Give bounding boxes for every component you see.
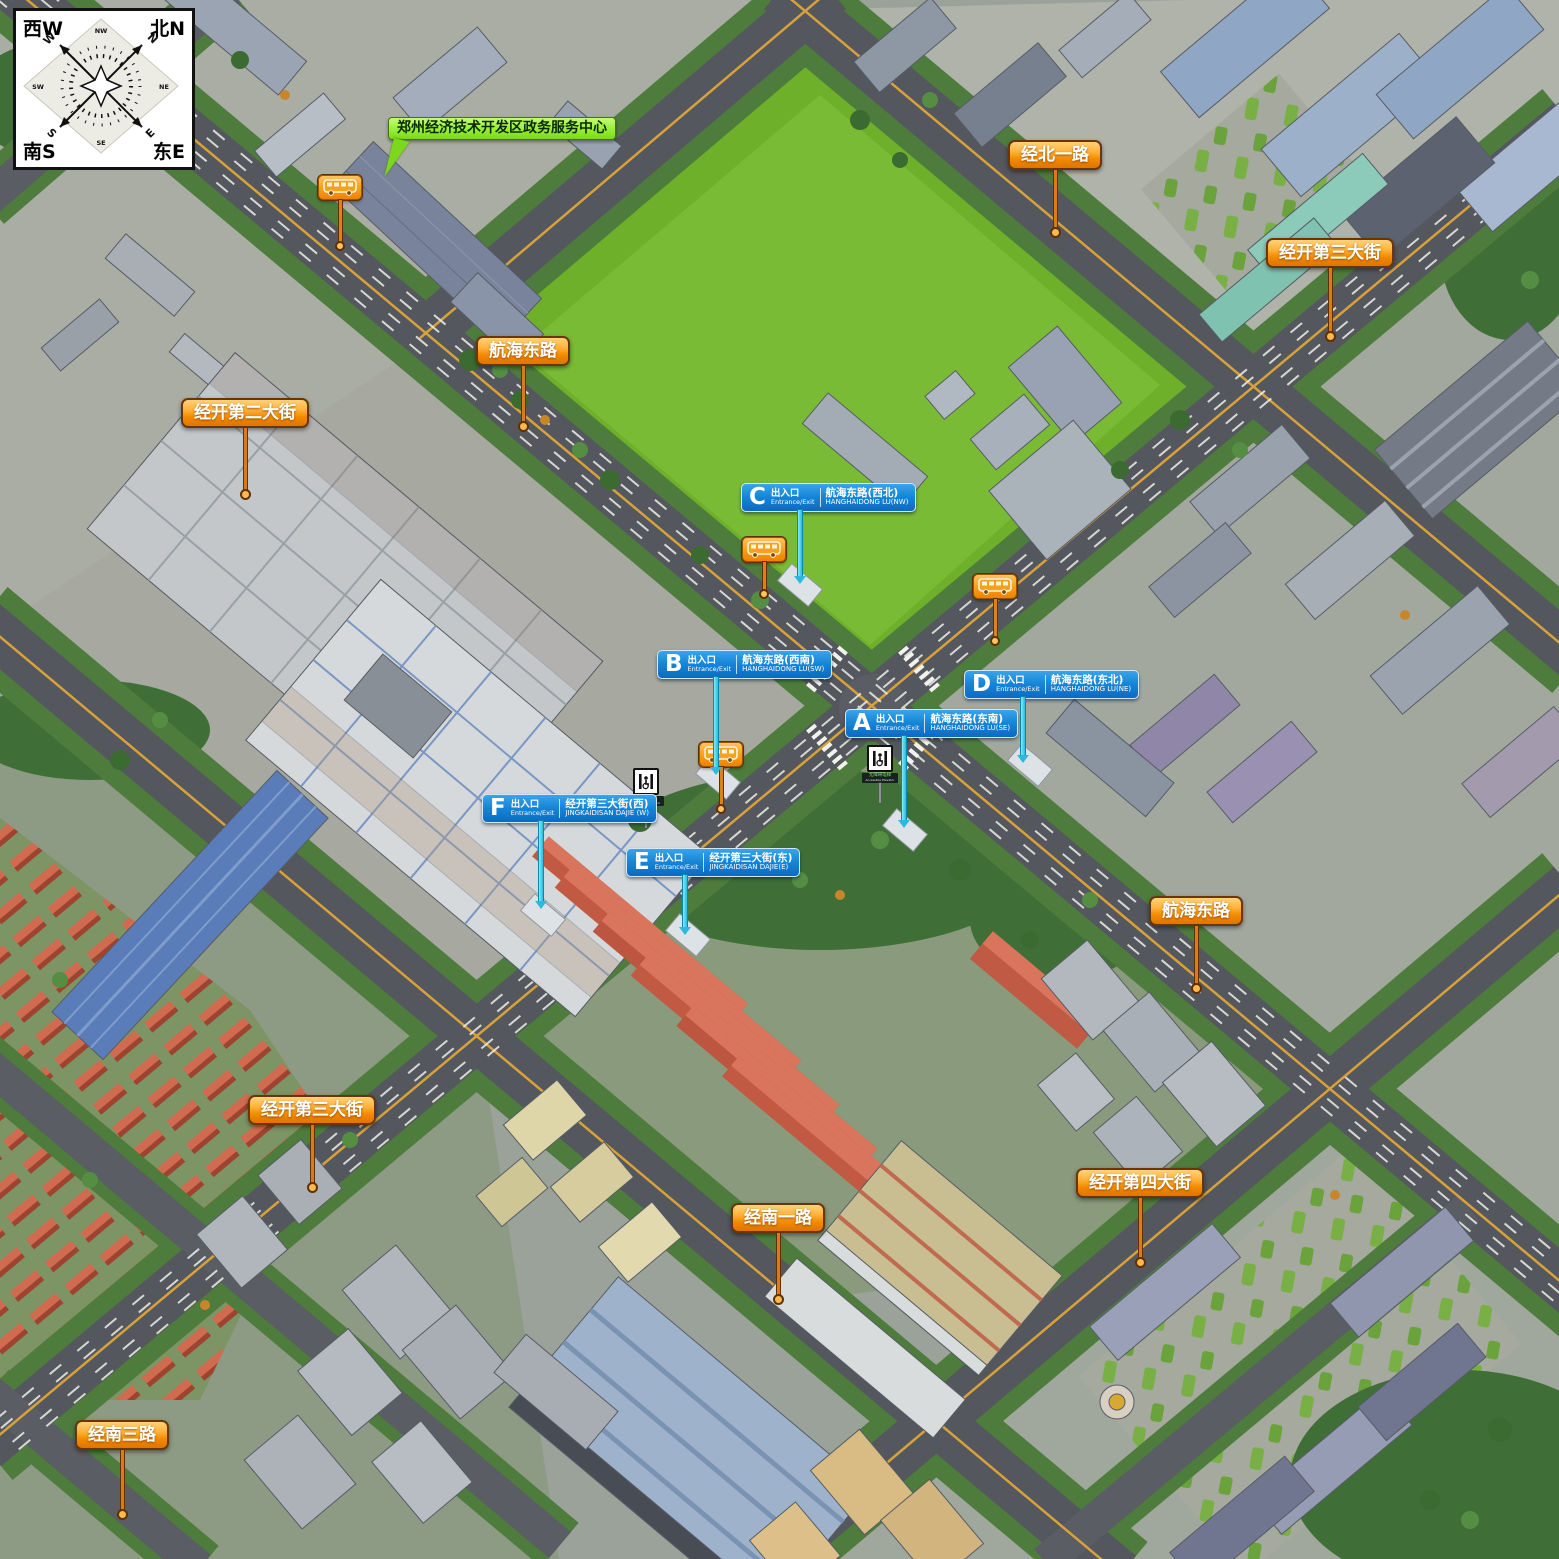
divider — [1045, 675, 1046, 694]
entrance-type-en: Entrance/Exit — [688, 666, 732, 673]
svg-text:NE: NE — [159, 83, 169, 91]
entrance-stick-tip — [535, 901, 547, 909]
entrance-road-en: HANGHAIDONG LU(SE) — [930, 725, 1010, 732]
metro-entrance-b[interactable]: B 出入口Entrance/Exit 航海东路(西南)HANGHAIDONG L… — [657, 650, 832, 679]
compass-south-label: 南S — [23, 137, 56, 164]
road-label-jingkai-3-dajie-north[interactable]: 经开第三大街 — [1266, 238, 1394, 342]
bus-stop-marker[interactable] — [742, 537, 786, 599]
entrance-type-en: Entrance/Exit — [876, 725, 920, 732]
bus-stop-marker[interactable] — [318, 175, 362, 251]
svg-text:SW: SW — [32, 83, 44, 91]
compass-west-label: 西W — [23, 14, 63, 41]
entrance-letter: D — [972, 671, 991, 698]
entrance-type-en: Entrance/Exit — [771, 499, 815, 506]
map-scene — [0, 0, 1559, 1559]
compass: W N S E NW NE SE SW 西W 北N 南S 东E — [13, 8, 195, 170]
entrance-road-en: HANGHAIDONG LU(SW) — [742, 666, 824, 673]
entrance-stick — [539, 821, 543, 901]
accessible-elevator-marker[interactable]: 无障碍电梯 Accessible Elevator — [862, 745, 898, 803]
entrance-type-en: Entrance/Exit — [511, 810, 555, 817]
bus-icon — [699, 742, 743, 767]
poi-callout-label: 郑州经济技术开发区政务服务中心 — [388, 117, 616, 140]
bus-stop-marker[interactable] — [699, 742, 743, 814]
divider — [924, 714, 925, 733]
entrance-stick-tip — [1017, 755, 1029, 763]
svg-text:NW: NW — [95, 27, 108, 35]
poi-callout-government-service-center[interactable]: 郑州经济技术开发区政务服务中心 — [388, 117, 616, 140]
road-label-jingnan-3-lu[interactable]: 经南三路 — [75, 1420, 169, 1520]
metro-entrance-f[interactable]: F 出入口Entrance/Exit 经开第三大街(西)JINGKAIDISAN… — [482, 794, 657, 823]
bus-icon — [742, 537, 786, 562]
entrance-stick-tip — [679, 927, 691, 935]
entrance-letter: E — [634, 849, 650, 876]
entrance-road-en: JINGKAIDISAN DAJIE(E) — [709, 864, 792, 871]
divider — [703, 853, 704, 872]
road-label-jingbei-1-lu[interactable]: 经北一路 — [1008, 140, 1102, 238]
entrance-stick — [683, 875, 687, 927]
svg-text:SE: SE — [96, 139, 105, 147]
accessible-elevator-icon — [867, 745, 893, 772]
bus-icon — [318, 175, 362, 200]
entrance-road-en: HANGHAIDONG LU(NW) — [826, 499, 909, 506]
entrance-stick — [902, 736, 906, 820]
entrance-stick — [714, 677, 718, 767]
entrance-letter: F — [490, 795, 506, 822]
entrance-type-en: Entrance/Exit — [655, 864, 699, 871]
entrance-stick-tip — [898, 820, 910, 828]
entrance-stick — [798, 510, 802, 576]
entrance-road-en: HANGHAIDONG LU(NE) — [1051, 686, 1131, 693]
metro-entrance-a[interactable]: A 出入口Entrance/Exit 航海东路(东南)HANGHAIDONG L… — [845, 709, 1018, 738]
accessible-elevator-icon — [633, 768, 659, 795]
divider — [820, 488, 821, 507]
entrance-letter: A — [853, 710, 871, 737]
entrance-letter: C — [749, 484, 766, 511]
compass-east-label: 东E — [153, 137, 185, 164]
road-label-hanghai-dong-lu-west[interactable]: 航海东路 — [476, 336, 570, 432]
entrance-stick-tip — [794, 576, 806, 584]
road-label-jingkai-4-dajie[interactable]: 经开第四大街 — [1076, 1168, 1204, 1268]
entrance-stick-tip — [710, 767, 722, 775]
metro-entrance-c[interactable]: C 出入口Entrance/Exit 航海东路(西北)HANGHAIDONG L… — [741, 483, 916, 512]
bus-icon — [973, 574, 1017, 599]
accessible-elevator-label: 无障碍电梯 Accessible Elevator — [862, 773, 898, 783]
isometric-city-map: W N S E NW NE SE SW 西W 北N 南S 东E 郑州经济技术开发… — [0, 0, 1559, 1559]
road-label-hanghai-dong-lu-east[interactable]: 航海东路 — [1149, 896, 1243, 994]
divider — [559, 799, 560, 818]
entrance-letter: B — [665, 651, 683, 678]
divider — [736, 655, 737, 674]
compass-north-label: 北N — [150, 14, 185, 41]
metro-entrance-e[interactable]: E 出入口Entrance/Exit 经开第三大街(东)JINGKAIDISAN… — [626, 848, 800, 877]
road-label-jingkai-2-dajie[interactable]: 经开第二大街 — [181, 398, 309, 500]
entrance-stick — [1021, 697, 1025, 755]
entrance-type-en: Entrance/Exit — [996, 686, 1040, 693]
road-label-jingkai-3-dajie-south[interactable]: 经开第三大街 — [248, 1095, 376, 1193]
road-label-jingnan-1-lu[interactable]: 经南一路 — [731, 1203, 825, 1305]
bus-stop-marker[interactable] — [973, 574, 1017, 646]
metro-entrance-d[interactable]: D 出入口Entrance/Exit 航海东路(东北)HANGHAIDONG L… — [964, 670, 1139, 699]
entrance-road-en: JINGKAIDISAN DAJIE (W) — [565, 810, 649, 817]
